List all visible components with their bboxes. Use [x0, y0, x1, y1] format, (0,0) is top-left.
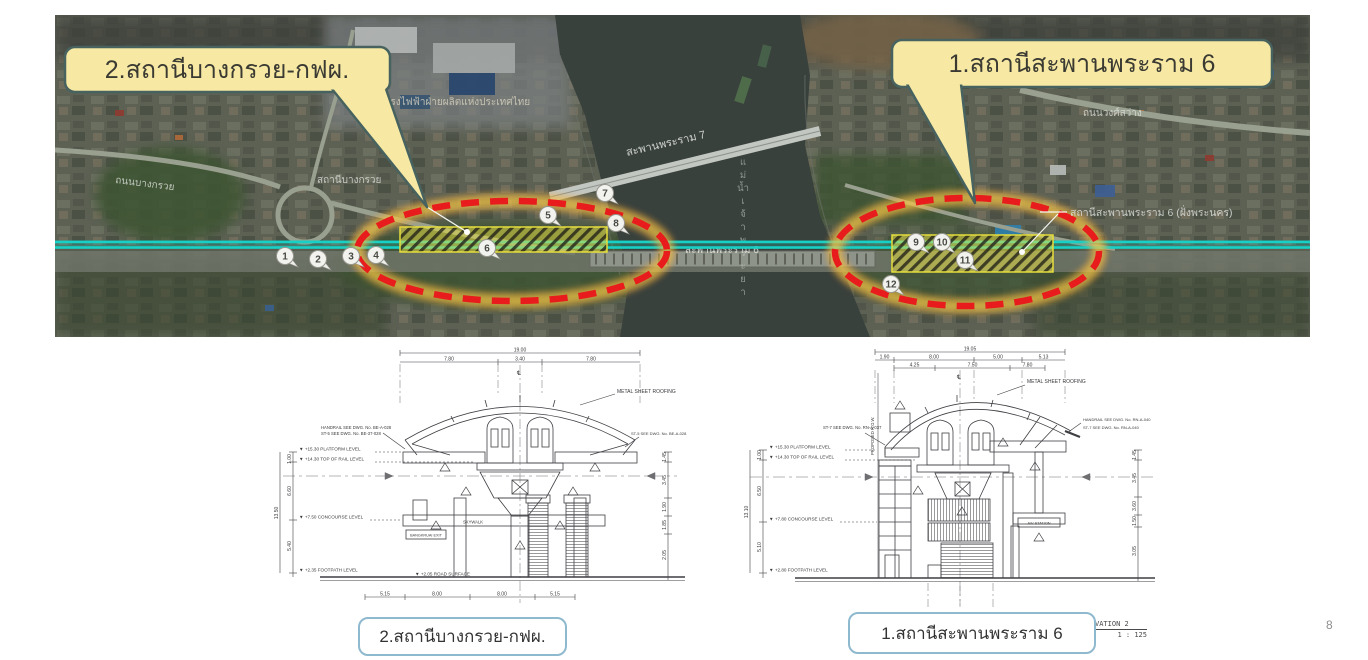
callout-bangkruai-label: 2.สถานีบางกรวย-กฟผ. [105, 56, 350, 84]
svg-text:3.40: 3.40 [515, 357, 525, 363]
station-footprint-bangkruai [400, 227, 607, 252]
title-block-line2: 1 : 125 [1095, 631, 1147, 639]
svg-text:1.00: 1.00 [287, 454, 293, 464]
svg-text:8: 8 [613, 219, 619, 230]
svg-text:8.00: 8.00 [432, 592, 442, 598]
svg-text:▼ +14.30 TOP OF RAIL LEVEL: ▼ +14.30 TOP OF RAIL LEVEL [299, 457, 364, 462]
note-exit-box: BANGKRUAI EXIT [410, 534, 443, 538]
svg-text:6.60: 6.60 [287, 486, 293, 496]
note-station-box: A/V STATION [1027, 522, 1050, 526]
svg-text:▼ +14.30 TOP OF RAIL LEVEL: ▼ +14.30 TOP OF RAIL LEVEL [769, 455, 834, 460]
label-station-rama6-bank: สถานีสะพานพระราม 6 (ฝั่งพระนคร) [1070, 205, 1233, 219]
title-block-line1: VATION 2 [1095, 620, 1147, 628]
note-handrail: HANDRAIL SEE DWG. No. RN-A-040 [1083, 417, 1151, 422]
dimension-text: 19.00 7.80 3.40 7.80 5.15 8.00 8.00 5.15… [274, 348, 668, 598]
svg-text:3.45: 3.45 [662, 475, 668, 485]
svg-text:1.50: 1.50 [1132, 516, 1138, 526]
svg-text:8.00: 8.00 [497, 592, 507, 598]
svg-text:2.05: 2.05 [662, 550, 668, 560]
svg-text:5.15: 5.15 [380, 592, 390, 598]
route-line [55, 242, 1310, 248]
svg-text:▼ +15.30 PLATFORM LEVEL: ▼ +15.30 PLATFORM LEVEL [299, 447, 361, 452]
svg-text:2: 2 [315, 255, 321, 266]
drawing-rama6-section: 19.05 1.90 8.00 5.00 5.13 4.25 7.50 7.80… [735, 345, 1165, 620]
dimensions [280, 350, 672, 600]
svg-text:1.90: 1.90 [662, 502, 668, 512]
svg-text:5.13: 5.13 [1039, 355, 1049, 361]
svg-text:1.00: 1.00 [757, 450, 763, 460]
label-road-wongsawang: ถนนวงศ์สว่าง [1083, 107, 1142, 119]
label-egat: โรงไฟฟ้าฝ่ายผลิตแห่งประเทศไทย [385, 95, 530, 108]
svg-text:7.80: 7.80 [444, 357, 454, 363]
svg-text:1.85: 1.85 [662, 520, 668, 530]
svg-text:7: 7 [602, 189, 608, 200]
satellite-map: ถนนบางกรวย สถานีบางกรวย โรงไฟฟ้าฝ่ายผลิต… [55, 15, 1310, 337]
svg-text:3.45: 3.45 [1132, 473, 1138, 483]
svg-text:▼ +2.05 ROAD SURFACE: ▼ +2.05 ROAD SURFACE [415, 572, 470, 577]
caption-rama6-label: 1.สถานีสะพานพระราม 6 [881, 620, 1062, 647]
structure [795, 395, 1155, 582]
svg-text:7.80: 7.80 [1023, 363, 1033, 369]
note-st-right: ST-5 SEE DWG. No. BE-A-028 [631, 431, 687, 436]
svg-text:3.60: 3.60 [1132, 501, 1138, 511]
svg-text:10: 10 [936, 238, 948, 249]
svg-text:▼ +7.50 CONCOURSE LEVEL: ▼ +7.50 CONCOURSE LEVEL [299, 515, 364, 520]
note-handrail: HANDRAIL SEE DWG. No. BE-A-028 [321, 425, 392, 430]
svg-text:4.25: 4.25 [910, 363, 920, 369]
svg-text:5.15: 5.15 [550, 592, 560, 598]
note-roofing: METAL SHEET ROOFING [617, 389, 676, 395]
svg-text:8.00: 8.00 [929, 355, 939, 361]
caption-rama6: 1.สถานีสะพานพระราม 6 [848, 612, 1096, 654]
svg-text:▼ +2.80 FOOTPATH LEVEL: ▼ +2.80 FOOTPATH LEVEL [769, 568, 828, 573]
svg-text:12: 12 [885, 280, 897, 291]
svg-text:1.90: 1.90 [880, 355, 890, 361]
note-skywalk: SKYWALK [463, 520, 483, 525]
svg-text:1.45: 1.45 [662, 452, 668, 462]
svg-text:13.10: 13.10 [744, 506, 750, 519]
note-st-right: ST-7 SEE DWG. No. RN-A-040 [1083, 425, 1140, 430]
note-st-left: ST-7 SEE DWG. No. RN-A-037 [823, 425, 882, 430]
slide: ถนนบางกรวย สถานีบางกรวย โรงไฟฟ้าฝ่ายผลิต… [0, 0, 1368, 660]
svg-text:9: 9 [913, 238, 919, 249]
svg-text:4: 4 [373, 251, 379, 262]
svg-text:3: 3 [348, 252, 354, 263]
centerline-symbol: ℄ [956, 375, 961, 381]
svg-text:5.10: 5.10 [757, 542, 763, 552]
drawing-bangkruai-section: 19.00 7.80 3.40 7.80 5.15 8.00 8.00 5.15… [265, 345, 695, 615]
svg-text:11: 11 [960, 256, 971, 267]
svg-text:3.05: 3.05 [1132, 546, 1138, 556]
caption-bangkruai: 2.สถานีบางกรวย-กฟผ. [358, 617, 567, 656]
label-station-bangkruai: สถานีบางกรวย [317, 174, 381, 186]
caption-bangkruai-label: 2.สถานีบางกรวย-กฟผ. [379, 623, 545, 650]
note-row: PROPOSED R.O.W. [870, 417, 875, 455]
svg-text:5: 5 [545, 211, 551, 222]
svg-text:1: 1 [282, 252, 288, 263]
svg-text:7.50: 7.50 [968, 363, 978, 369]
level-labels: ▼ +15.30 PLATFORM LEVEL ▼ +14.30 TOP OF … [769, 445, 834, 573]
callout-rama6-label: 1.สถานีสะพานพระราม 6 [949, 50, 1216, 78]
svg-text:1.45: 1.45 [1132, 450, 1138, 460]
note-st-left: ST-5 SEE DWG. No. BE-37-028 [321, 431, 381, 436]
centerline-symbol: ℄ [516, 371, 521, 377]
page-number: 8 [1326, 618, 1333, 632]
level-labels: ▼ +15.30 PLATFORM LEVEL ▼ +14.30 TOP OF … [299, 447, 470, 577]
svg-text:▼ +15.30 PLATFORM LEVEL: ▼ +15.30 PLATFORM LEVEL [769, 445, 831, 450]
svg-text:▼ +2.35 FOOTPATH LEVEL: ▼ +2.35 FOOTPATH LEVEL [299, 568, 358, 573]
svg-text:5.40: 5.40 [287, 541, 293, 551]
svg-text:▼ +7.80 CONCOURSE LEVEL: ▼ +7.80 CONCOURSE LEVEL [769, 517, 834, 522]
note-roofing: METAL SHEET ROOFING [1027, 379, 1086, 385]
svg-text:19.05: 19.05 [964, 347, 977, 353]
svg-text:6.50: 6.50 [757, 486, 763, 496]
svg-text:6: 6 [484, 244, 490, 255]
title-block-partial: VATION 2 1 : 125 [1095, 620, 1147, 639]
structure [320, 395, 685, 581]
svg-text:7.80: 7.80 [586, 357, 596, 363]
svg-text:19.00: 19.00 [514, 348, 527, 354]
svg-text:13.50: 13.50 [274, 507, 280, 520]
svg-text:5.00: 5.00 [993, 355, 1003, 361]
